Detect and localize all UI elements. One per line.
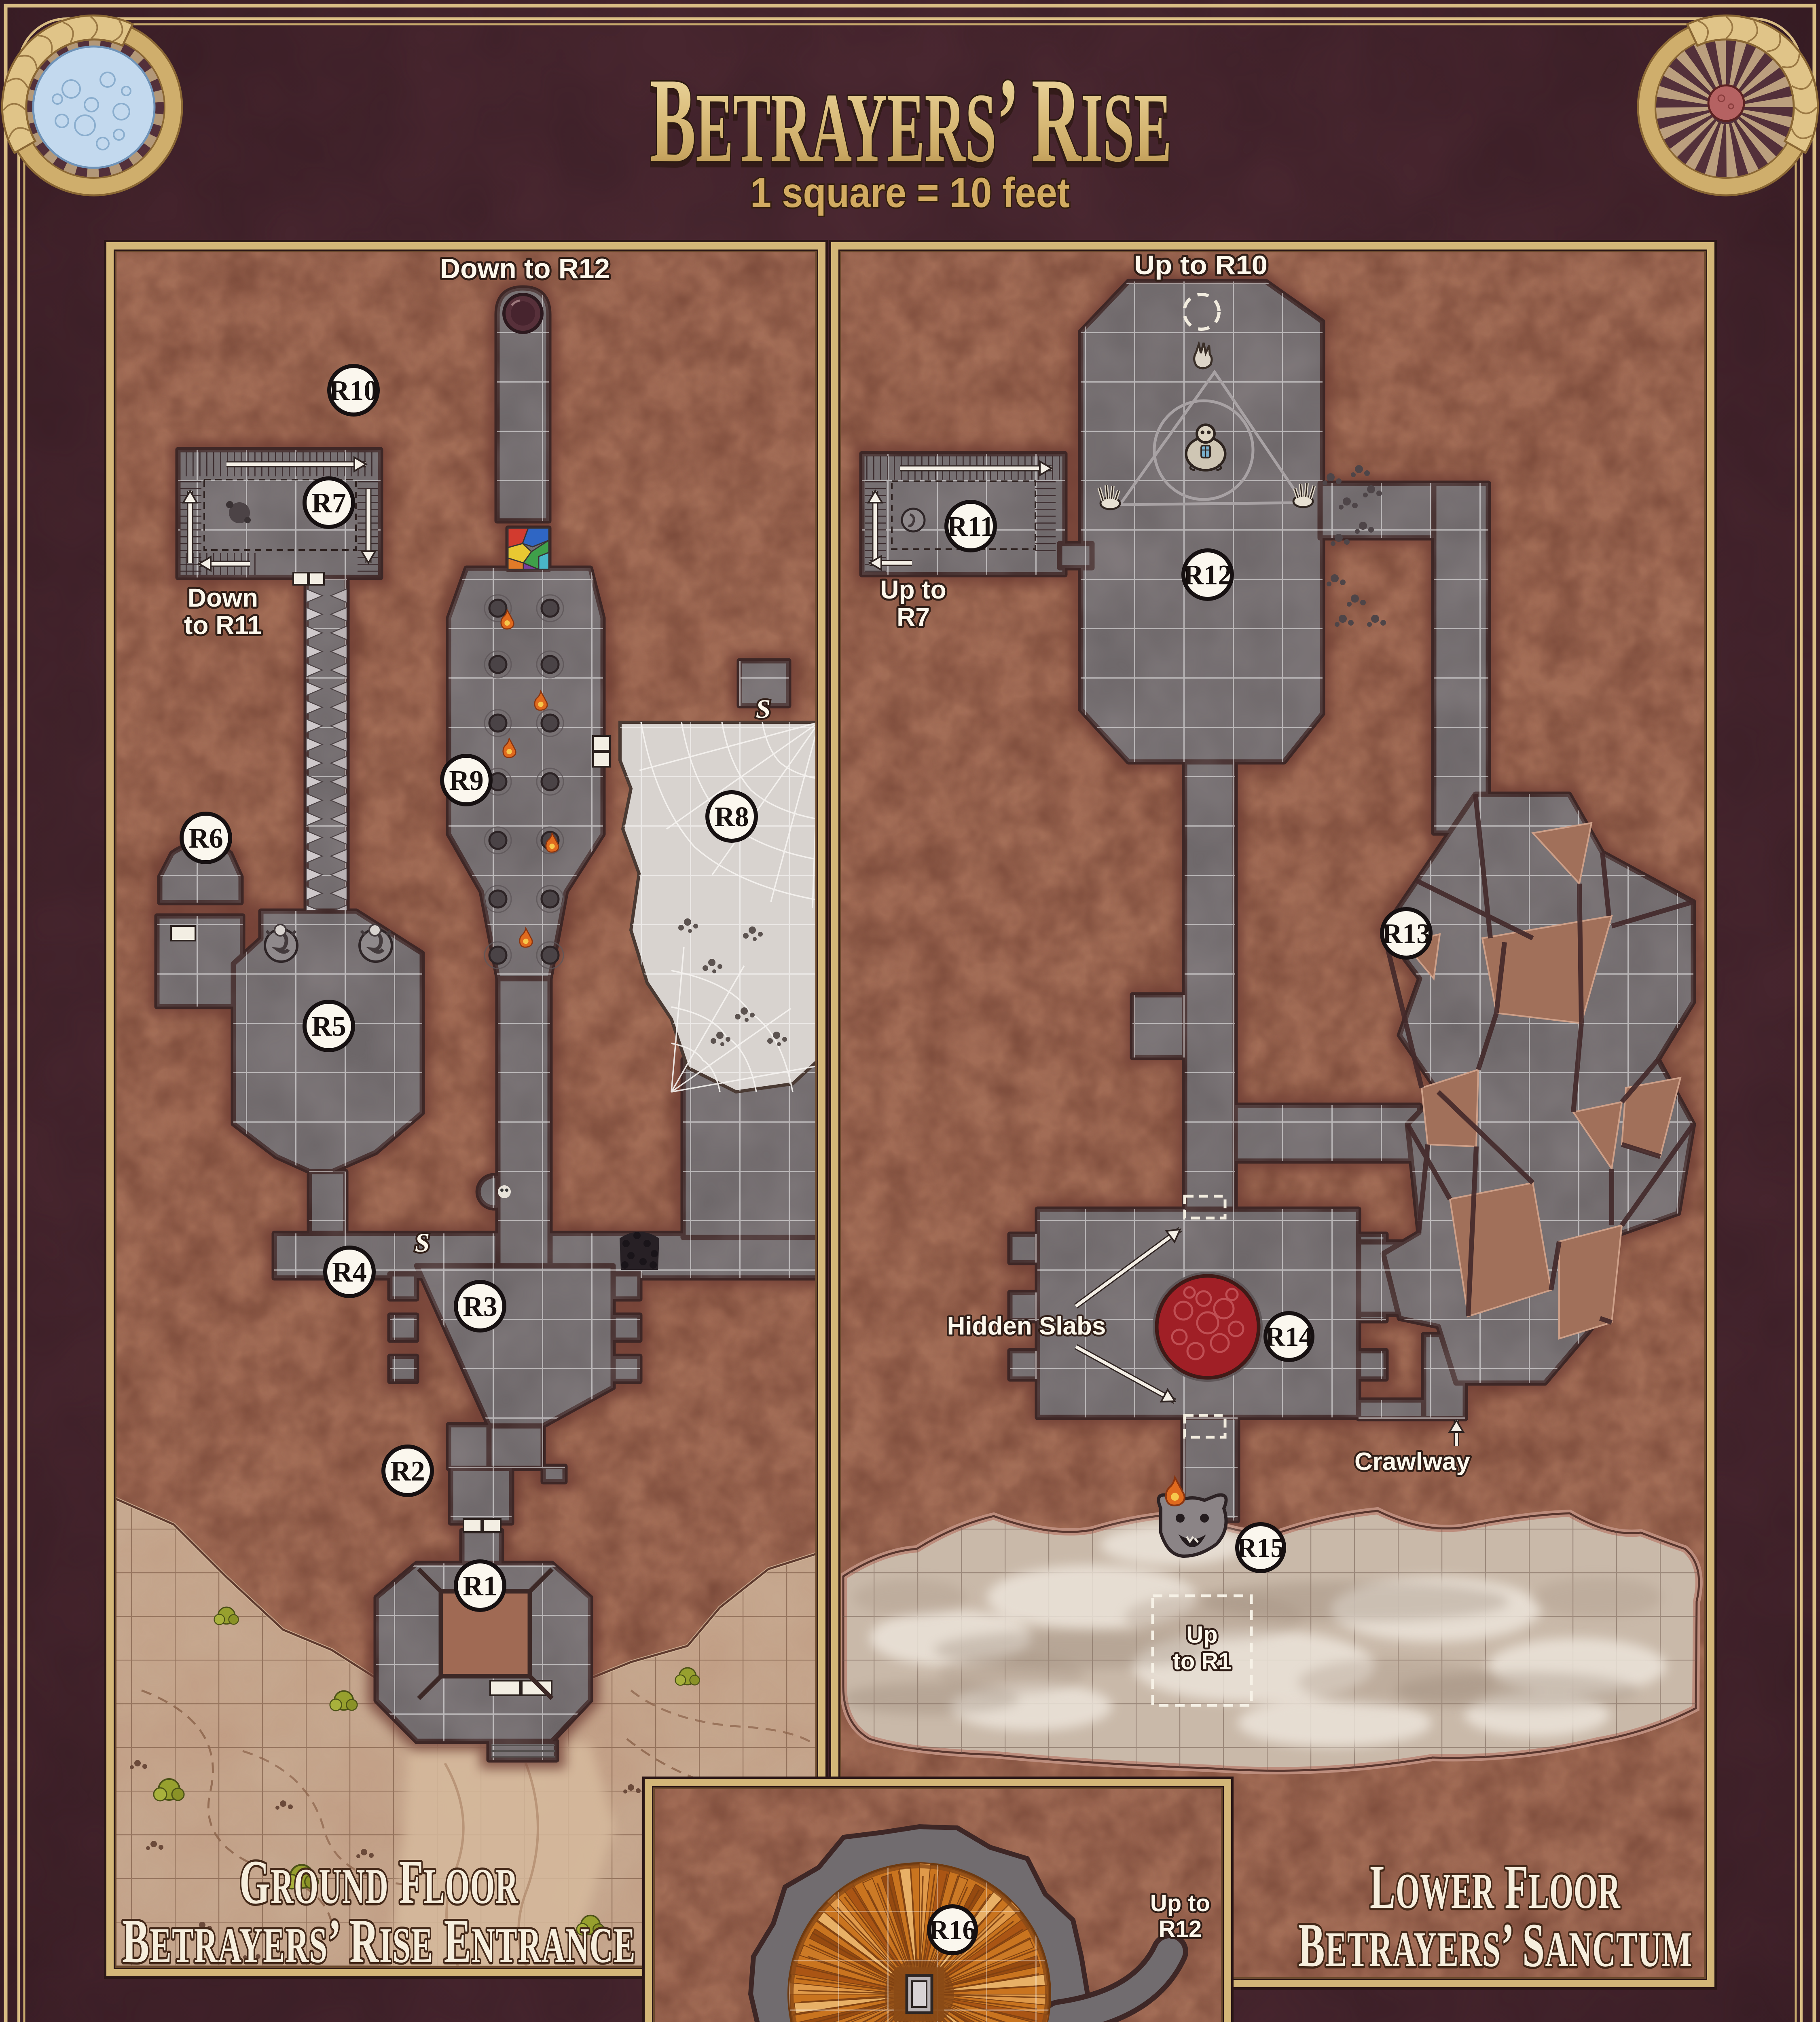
- svg-text:R11: R11: [947, 511, 995, 542]
- svg-text:R12: R12: [1183, 560, 1232, 591]
- svg-text:R13: R13: [1382, 918, 1431, 950]
- svg-text:R1: R1: [463, 1571, 497, 1602]
- svg-text:Hidden Slabs: Hidden Slabs: [947, 1312, 1106, 1340]
- svg-text:S: S: [756, 694, 771, 724]
- svg-text:Up: Up: [1186, 1622, 1217, 1648]
- svg-text:R2: R2: [390, 1456, 425, 1487]
- svg-text:R9: R9: [449, 765, 484, 796]
- svg-text:R6: R6: [188, 823, 223, 854]
- svg-text:Down: Down: [188, 583, 258, 612]
- svg-text:Up to: Up to: [1150, 1890, 1210, 1916]
- svg-text:S: S: [415, 1228, 430, 1258]
- svg-text:R8: R8: [714, 802, 749, 833]
- svg-text:R10: R10: [329, 375, 378, 406]
- svg-text:1 square = 10 feet: 1 square = 10 feet: [750, 169, 1070, 216]
- svg-text:R7: R7: [311, 488, 346, 519]
- svg-text:R14: R14: [1265, 1321, 1312, 1352]
- svg-text:Crawlway: Crawlway: [1354, 1448, 1471, 1476]
- svg-text:BETRAYERS’ RISE: BETRAYERS’ RISE: [650, 53, 1172, 187]
- svg-text:R3: R3: [463, 1291, 497, 1322]
- svg-text:Down to R12: Down to R12: [440, 253, 610, 284]
- svg-text:R4: R4: [332, 1257, 367, 1288]
- svg-text:R16: R16: [929, 1914, 976, 1945]
- svg-text:Up to R10: Up to R10: [1134, 250, 1268, 280]
- svg-text:R5: R5: [311, 1011, 346, 1042]
- svg-text:R7: R7: [897, 603, 930, 632]
- svg-text:to R11: to R11: [184, 611, 262, 640]
- svg-text:R15: R15: [1237, 1532, 1284, 1563]
- svg-text:R12: R12: [1159, 1916, 1202, 1942]
- svg-text:to R1: to R1: [1173, 1648, 1232, 1675]
- svg-text:Up to: Up to: [880, 575, 946, 604]
